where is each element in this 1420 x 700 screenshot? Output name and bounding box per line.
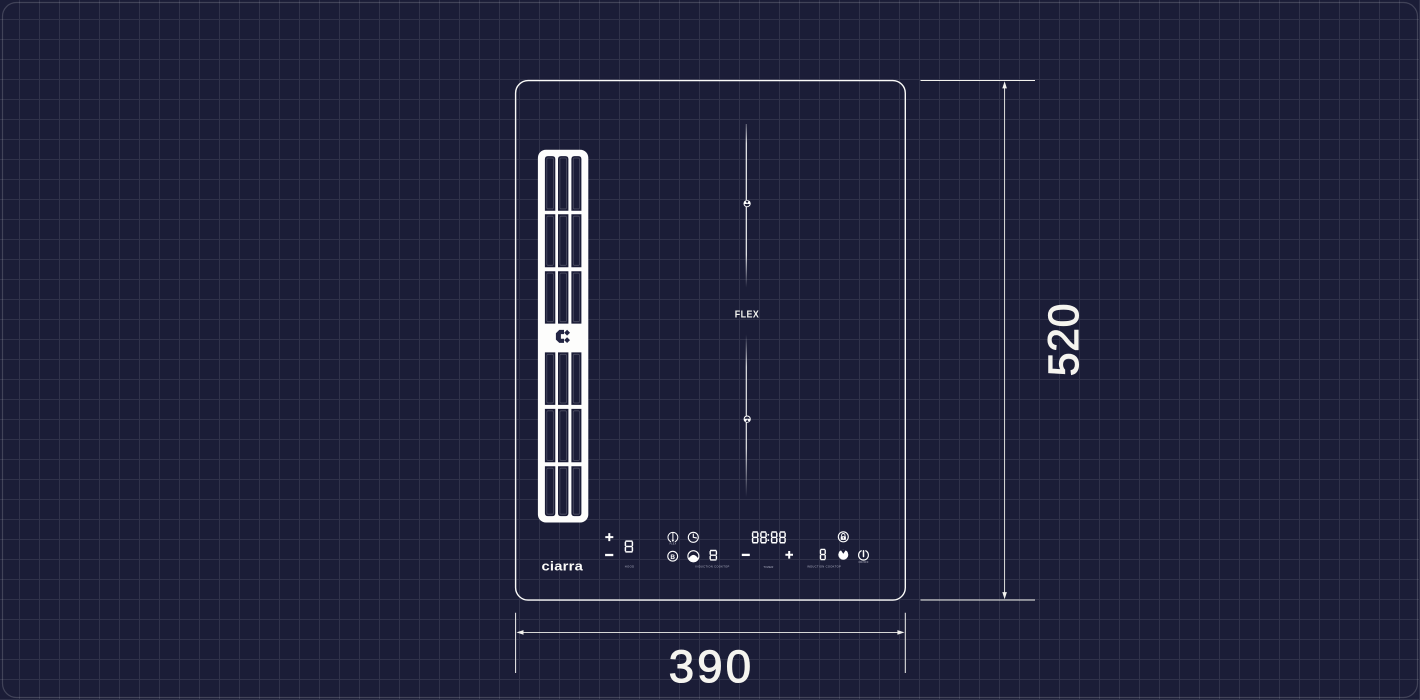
svg-text:B: B: [670, 554, 675, 561]
svg-text:ciarra: ciarra: [542, 558, 584, 573]
svg-text:HOOD: HOOD: [625, 565, 635, 569]
svg-text:FLEX: FLEX: [670, 543, 677, 546]
svg-text:FLEX: FLEX: [735, 309, 760, 320]
svg-text:390: 390: [669, 641, 755, 692]
svg-text:TIMER: TIMER: [763, 565, 773, 569]
svg-text:INDUCTION COOKTOP: INDUCTION COOKTOP: [695, 565, 729, 569]
svg-text:ON/OFF: ON/OFF: [858, 561, 869, 564]
svg-text:INDUCTION COOKTOP: INDUCTION COOKTOP: [807, 565, 841, 569]
svg-text:520: 520: [1041, 303, 1088, 376]
